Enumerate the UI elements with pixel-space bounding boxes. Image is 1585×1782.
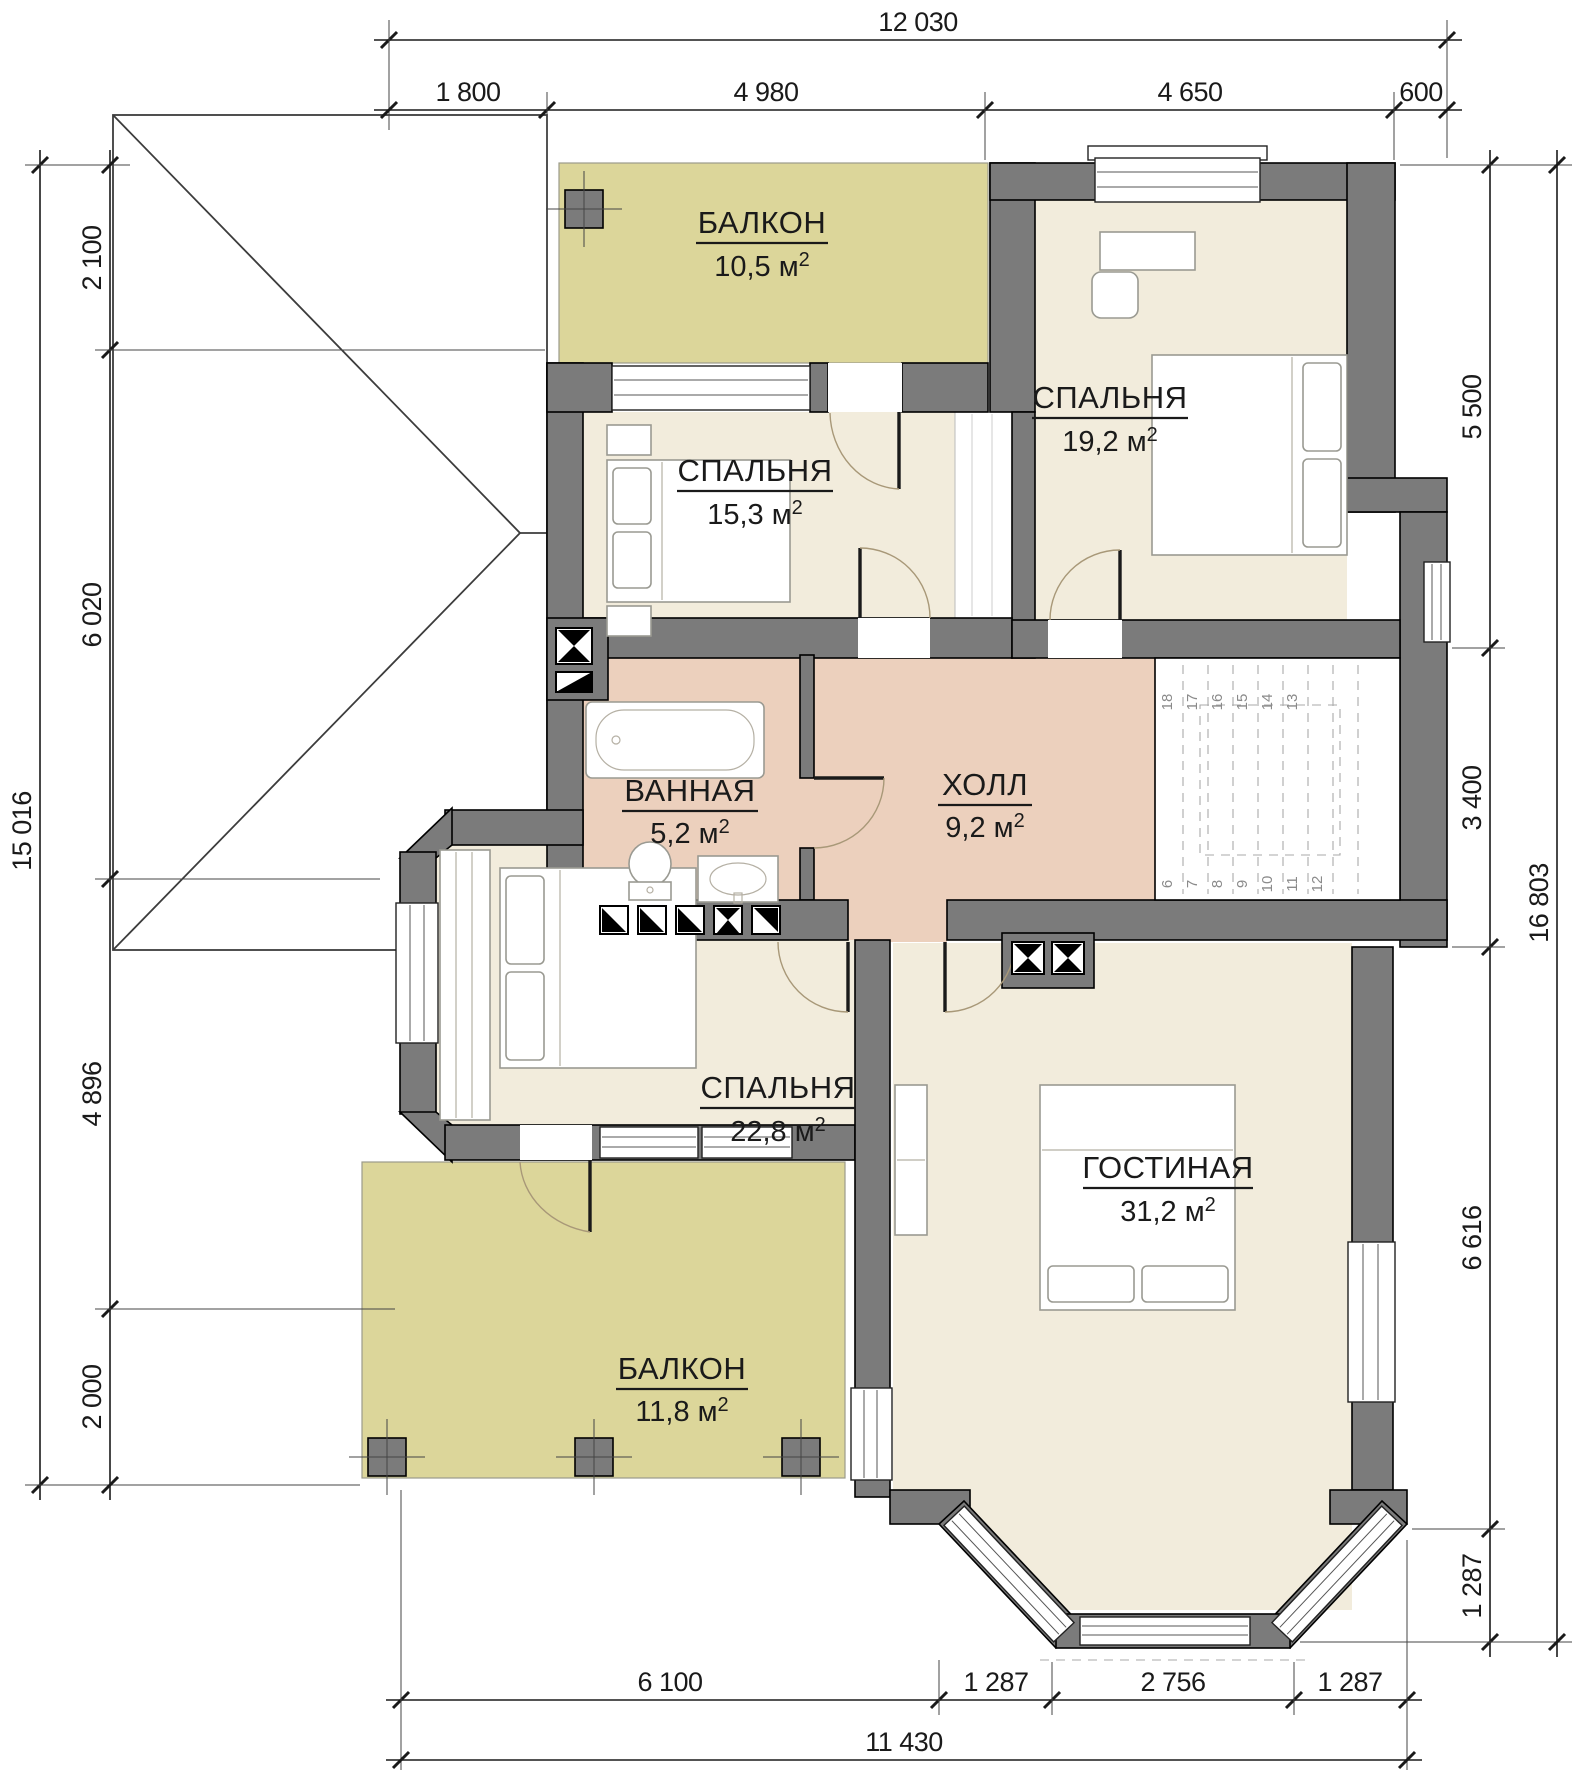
svg-text:4 980: 4 980 [733,77,798,107]
toilet-icon [629,842,671,900]
svg-text:1 287: 1 287 [1457,1553,1487,1618]
svg-text:6 100: 6 100 [637,1667,702,1697]
svg-text:ГОСТИНАЯ: ГОСТИНАЯ [1082,1150,1253,1185]
svg-text:11: 11 [1284,876,1301,892]
svg-text:22,8м2: 22,8м2 [730,1114,826,1148]
svg-text:6 616: 6 616 [1457,1205,1487,1270]
window-bedroom-22-left [396,903,438,1043]
svg-text:9,2м2: 9,2м2 [945,810,1024,844]
svg-text:10,5м2: 10,5м2 [714,249,810,283]
window-bedroom-19-top [1088,146,1267,202]
svg-text:2 100: 2 100 [77,225,107,290]
svg-text:16: 16 [1209,694,1226,711]
window-bedroom-22-bottom-1 [600,1127,698,1158]
room-balcony-bottom-floor [362,1162,845,1478]
corridor-floor [848,900,947,942]
svg-text:СПАЛЬНЯ: СПАЛЬНЯ [1033,380,1188,415]
svg-text:1 287: 1 287 [1317,1667,1382,1697]
svg-text:11,8м2: 11,8м2 [635,1394,728,1428]
svg-text:5 500: 5 500 [1457,374,1487,439]
svg-text:13: 13 [1284,694,1301,711]
svg-text:4 650: 4 650 [1157,77,1222,107]
svg-text:СПАЛЬНЯ: СПАЛЬНЯ [678,453,833,488]
floor-plan-drawing: 18 17 16 15 14 13 6 7 8 9 10 11 12 [0,0,1585,1782]
svg-text:4 896: 4 896 [77,1061,107,1126]
window-living-left [851,1388,892,1480]
svg-text:15 016: 15 016 [7,791,37,871]
svg-text:18: 18 [1159,694,1176,711]
svg-text:2 000: 2 000 [77,1364,107,1429]
svg-text:17: 17 [1184,694,1201,711]
svg-text:600: 600 [1399,77,1443,107]
svg-text:СПАЛЬНЯ: СПАЛЬНЯ [701,1070,856,1105]
svg-text:10: 10 [1259,876,1276,893]
svg-text:12 030: 12 030 [878,7,958,37]
svg-text:1 287: 1 287 [963,1667,1028,1697]
svg-text:19,2м2: 19,2м2 [1062,424,1158,458]
svg-text:1 800: 1 800 [435,77,500,107]
dim-top: 12 030 1 800 4 980 4 650 600 [374,7,1462,160]
staircase: 18 17 16 15 14 13 6 7 8 9 10 11 12 [1155,658,1400,900]
svg-text:16 803: 16 803 [1524,863,1554,943]
bathtub-icon [586,702,764,778]
window-right-step [1424,562,1450,642]
closet-bedroom-15 [955,412,1012,618]
svg-text:6: 6 [1159,880,1176,888]
svg-text:15,3м2: 15,3м2 [707,497,803,531]
svg-text:ВАННАЯ: ВАННАЯ [624,773,755,808]
svg-text:2 756: 2 756 [1140,1667,1205,1697]
window-balcony-wall [612,366,810,410]
svg-text:9: 9 [1234,880,1251,888]
svg-text:БАЛКОН: БАЛКОН [698,205,827,240]
svg-text:7: 7 [1184,880,1201,888]
room-balcony-top-floor [559,163,988,363]
vent-icons-bath-row [600,906,780,934]
svg-text:ХОЛЛ: ХОЛЛ [942,767,1028,802]
svg-text:11 430: 11 430 [865,1727,943,1757]
svg-text:5,2м2: 5,2м2 [650,816,729,850]
svg-text:3 400: 3 400 [1457,765,1487,830]
floor-plan-page: 18 17 16 15 14 13 6 7 8 9 10 11 12 [0,0,1585,1782]
svg-text:31,2м2: 31,2м2 [1120,1194,1216,1228]
svg-text:БАЛКОН: БАЛКОН [618,1351,747,1386]
svg-text:8: 8 [1209,880,1226,888]
svg-text:12: 12 [1309,876,1326,893]
vent-icon-bedroom-15 [556,628,592,692]
svg-text:15: 15 [1234,694,1251,711]
svg-text:6 020: 6 020 [77,582,107,647]
window-bay-bottom [1080,1617,1250,1645]
window-living-right [1348,1242,1395,1402]
sink-icon [698,856,778,903]
svg-text:14: 14 [1259,694,1276,711]
